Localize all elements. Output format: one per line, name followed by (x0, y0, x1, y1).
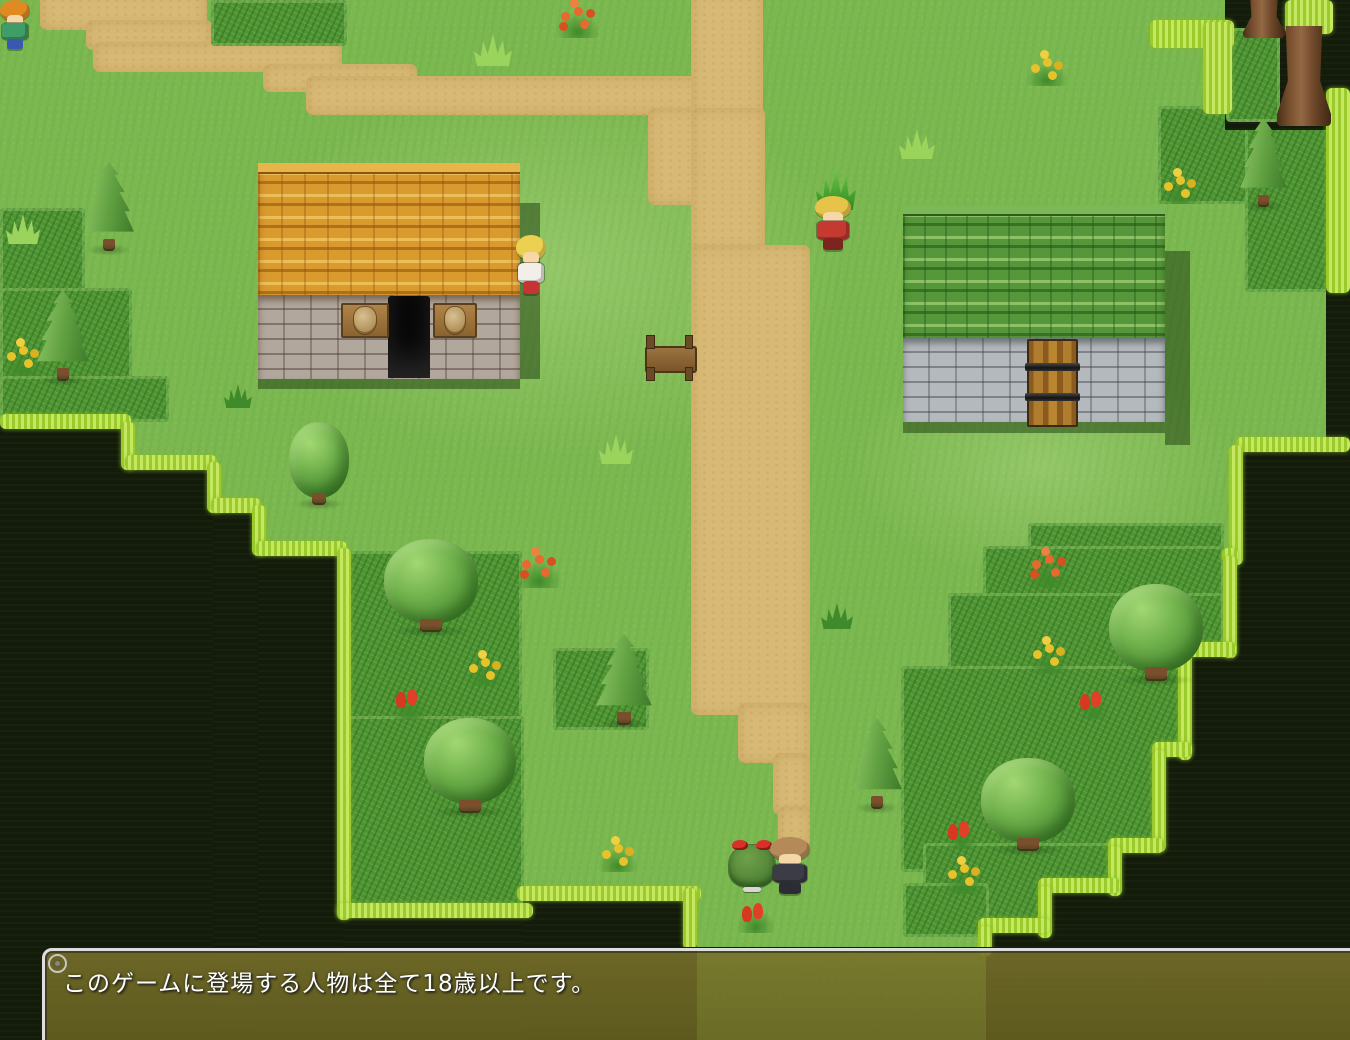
terrain-fringe (1152, 750, 1166, 852)
item-shop-house-shadow (258, 379, 520, 389)
orange-petals (574, 7, 583, 16)
goods-sack-icon (445, 307, 466, 333)
green-roof-house-roof (903, 205, 1165, 347)
tree-foliage (851, 718, 903, 799)
plant-leaves (944, 871, 985, 894)
terrain-fringe (1236, 437, 1350, 452)
tree-round (981, 758, 1075, 852)
char-legs (823, 238, 843, 250)
orange-plant (554, 0, 602, 38)
darktuft-plant (821, 603, 853, 629)
terrain-fringe (1203, 22, 1232, 114)
yellow-plant (1024, 48, 1070, 86)
tuft-plant (599, 434, 633, 464)
tuft-plant (899, 129, 935, 159)
terrain-fringe (337, 903, 533, 918)
terrain-fringe (683, 888, 697, 950)
bench-leg (685, 335, 694, 349)
bench-leg (685, 367, 694, 381)
terrain-fringe (125, 455, 217, 470)
tulip-plant (1078, 681, 1110, 719)
bush-feet (743, 887, 761, 892)
tree-foliage (1109, 584, 1203, 672)
char-legs (779, 882, 801, 894)
terrain-bush (1226, 28, 1280, 122)
item-shop-house-sign (341, 303, 389, 338)
orange-plant (1024, 544, 1074, 588)
terrain-fringe (0, 414, 131, 429)
orange-plant (514, 544, 564, 588)
tree-conifer (595, 634, 653, 726)
char-body (773, 864, 808, 884)
terrain-void (1238, 445, 1350, 570)
plant-leaves (1029, 651, 1070, 674)
tulip-plant (391, 678, 429, 720)
terrain-fringe (517, 886, 701, 901)
tree-foliage (981, 758, 1075, 843)
tree-round (289, 422, 349, 506)
tuft-plant (6, 214, 40, 244)
yellow-plant (596, 834, 640, 872)
terrain-path (691, 245, 810, 715)
tree-foliage (424, 718, 516, 804)
terrain-void (1230, 556, 1350, 658)
tuft-blades (899, 129, 935, 159)
terrain-void (1160, 750, 1350, 852)
character-villager-girl[interactable] (514, 235, 548, 295)
yellow-plant (941, 854, 987, 894)
green-roof-house-shadow (1165, 251, 1190, 445)
tree-foliage (289, 422, 349, 498)
yellow-plant (1158, 166, 1202, 204)
tulip-plant (736, 893, 776, 933)
tree-stem (1145, 667, 1168, 681)
char-body (518, 263, 544, 283)
tree-foliage (595, 634, 653, 715)
character-villager-kid[interactable] (0, 0, 32, 50)
darktuft-plant (224, 384, 252, 408)
tree-stem (617, 712, 631, 725)
ribbon-icon (732, 840, 748, 850)
tree-foliage (1239, 118, 1288, 197)
tulip-petals (959, 821, 969, 837)
tree-foliage (83, 162, 135, 241)
plant-leaves (1027, 562, 1071, 588)
tree-stem (103, 239, 115, 252)
tuft-blades (474, 34, 512, 66)
terrain-fringe (256, 541, 347, 556)
tree-foliage (384, 539, 478, 624)
plant-leaves (557, 14, 599, 38)
tree-stem (420, 619, 443, 632)
tree-conifer (1239, 118, 1288, 208)
item-shop-house-roof (258, 163, 520, 304)
terrain-fringe (337, 548, 351, 920)
window-ornament-icon (48, 954, 67, 973)
character-knight-npc[interactable] (767, 837, 813, 895)
plant-leaves (1027, 64, 1068, 86)
char-legs (523, 281, 539, 294)
character-hero-red-armor[interactable] (812, 196, 854, 251)
terrain-fringe (1229, 445, 1243, 565)
tree-conifer (851, 718, 903, 810)
game-viewport[interactable]: このゲームに登場する人物は全て18歳以上です。 (0, 0, 1350, 1040)
darktuft-blades (821, 603, 853, 629)
tree-stem (57, 368, 70, 381)
item-shop-house-sign (433, 303, 477, 338)
terrain-path (691, 108, 765, 253)
plant-leaves (1161, 182, 1200, 204)
tree-foliage (36, 290, 90, 371)
goods-sack-icon (354, 307, 377, 333)
tree-stem (1017, 838, 1040, 851)
bench-leg (646, 367, 655, 381)
darktuft-blades (224, 384, 252, 408)
yellow-plant (1026, 634, 1072, 674)
tree-stem (312, 493, 326, 505)
tree-round (1109, 584, 1203, 682)
yellow-plant (463, 648, 507, 686)
tulip-petals (407, 689, 417, 705)
terrain-void (1186, 650, 1350, 758)
wooden-bench (643, 334, 695, 380)
message-text: このゲームに登場する人物は全て18歳以上です。 (45, 951, 1350, 1011)
tree-stem (459, 800, 481, 813)
tree-round (424, 718, 516, 814)
tulip-petals (1091, 691, 1101, 707)
tuft-blades (599, 434, 633, 464)
tree-conifer (83, 162, 135, 252)
terrain-bush (211, 0, 347, 46)
green-roof-house-door[interactable] (1027, 339, 1078, 427)
message-window[interactable]: このゲームに登場する人物は全て18歳以上です。 (42, 948, 1350, 1040)
tuft-blades (6, 214, 40, 244)
tulip-petals (753, 903, 763, 919)
tulip-plant (946, 811, 978, 849)
tree-round (384, 539, 478, 633)
terrain-path (691, 0, 763, 120)
bench-leg (646, 335, 655, 349)
tree-stem (871, 796, 883, 809)
plant-leaves (517, 562, 561, 588)
char-legs (7, 39, 23, 50)
tree-conifer (36, 290, 90, 382)
item-shop-house-door[interactable] (388, 296, 430, 378)
char-body (817, 221, 849, 240)
plant-leaves (599, 850, 638, 872)
char-body (2, 23, 28, 40)
tree-stem (1258, 195, 1270, 208)
plant-leaves (466, 664, 505, 686)
tuft-plant (474, 34, 512, 66)
